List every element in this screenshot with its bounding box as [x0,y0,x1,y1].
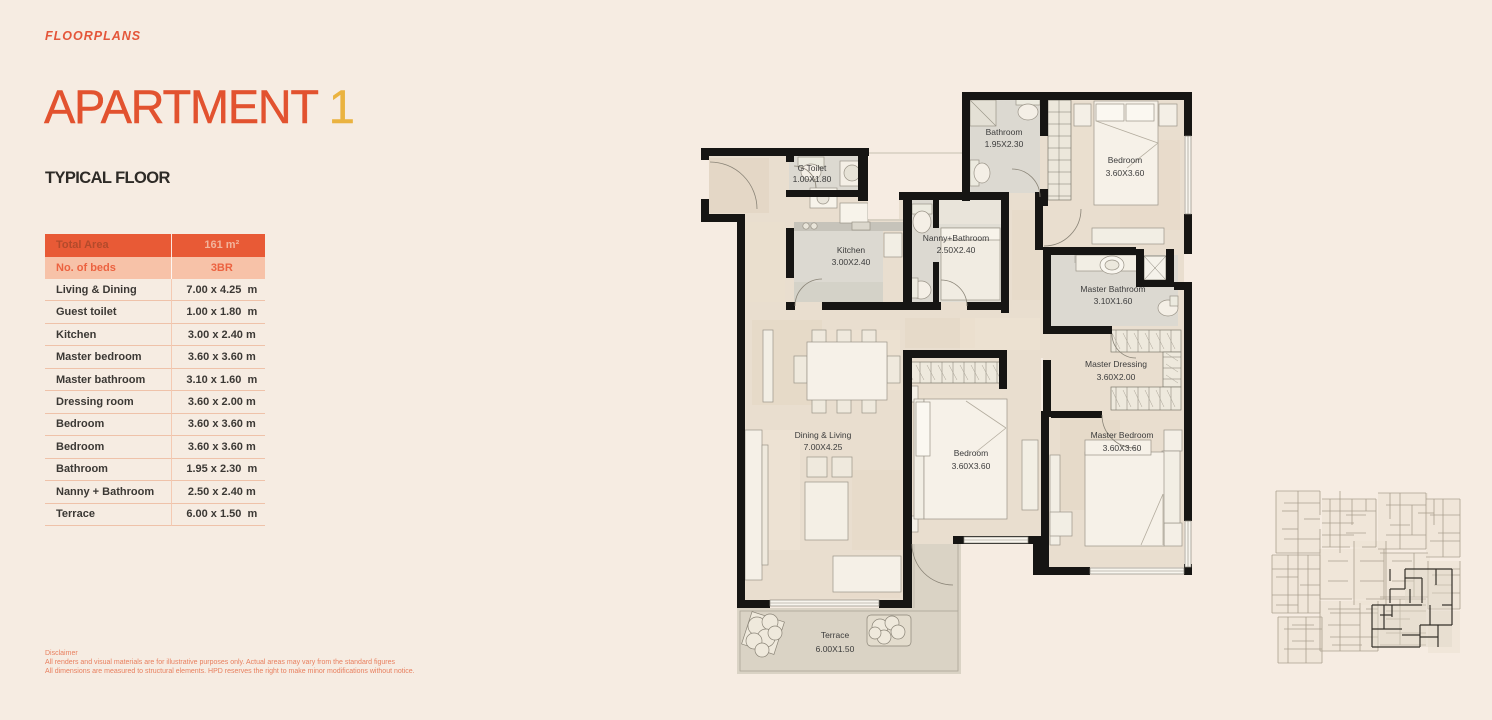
svg-text:3.60X3.60: 3.60X3.60 [1106,168,1145,178]
svg-text:6.00X1.50: 6.00X1.50 [816,644,855,654]
svg-text:1.00X1.80: 1.00X1.80 [793,174,832,184]
svg-text:2.50X2.40: 2.50X2.40 [937,245,976,255]
svg-text:1.95X2.30: 1.95X2.30 [985,139,1024,149]
svg-text:Nanny+Bathroom: Nanny+Bathroom [923,233,989,243]
svg-text:3.00X2.40: 3.00X2.40 [832,257,871,267]
svg-text:3.60X3.60: 3.60X3.60 [1103,443,1142,453]
svg-text:Kitchen: Kitchen [837,245,866,255]
svg-text:3.60X3.60: 3.60X3.60 [952,461,991,471]
svg-text:Master Bathroom: Master Bathroom [1080,284,1145,294]
svg-text:G Toilet: G Toilet [798,163,827,173]
svg-text:Bedroom: Bedroom [954,448,989,458]
svg-text:Master Dressing: Master Dressing [1085,359,1147,369]
svg-text:3.10X1.60: 3.10X1.60 [1094,296,1133,306]
svg-text:Bathroom: Bathroom [986,127,1023,137]
svg-text:Master Bedroom: Master Bedroom [1091,430,1154,440]
svg-text:7.00X4.25: 7.00X4.25 [804,442,843,452]
svg-text:Dining & Living: Dining & Living [795,430,852,440]
svg-text:Bedroom: Bedroom [1108,155,1143,165]
svg-text:Terrace: Terrace [821,630,850,640]
svg-text:3.60X2.00: 3.60X2.00 [1097,372,1136,382]
